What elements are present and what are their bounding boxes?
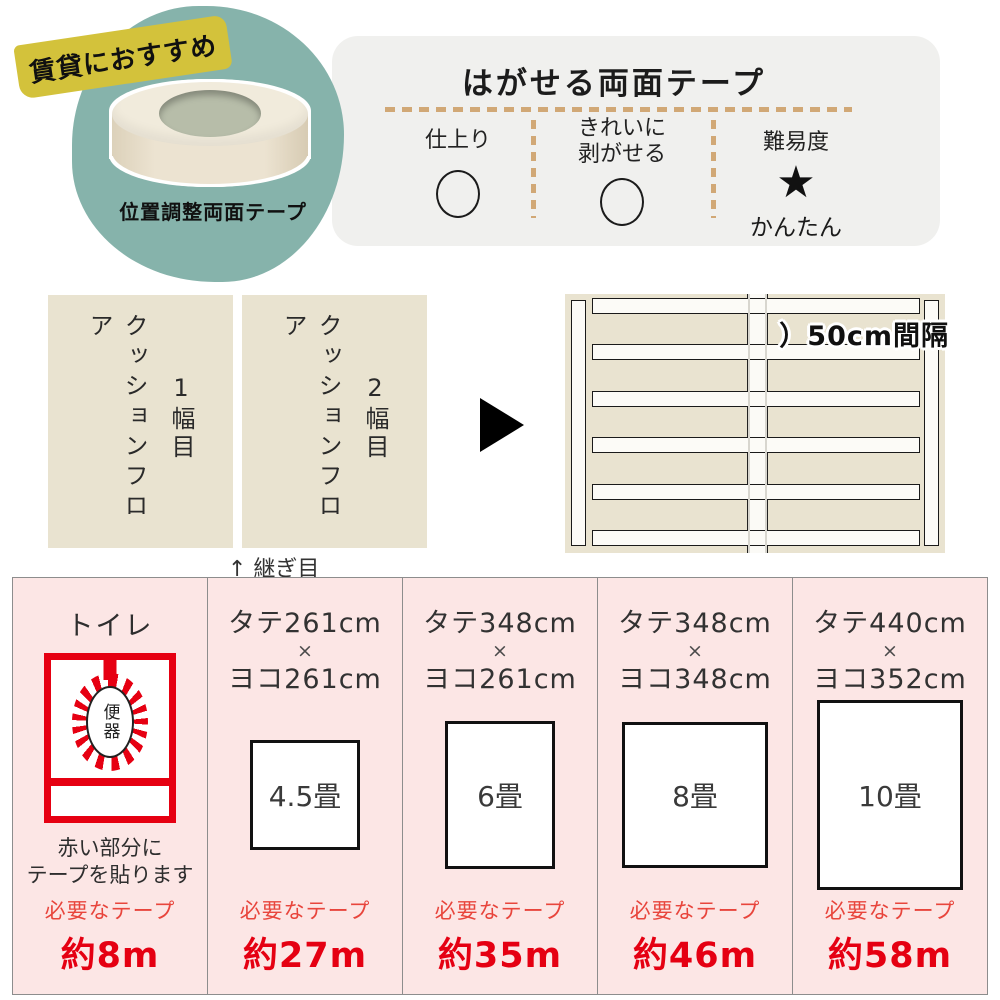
room-column-10jo: タテ440cm × ヨコ352cm 10畳 必要なテープ 約58m <box>792 578 987 994</box>
horizontal-tape-strip <box>592 530 920 546</box>
arrow-right-icon <box>480 398 524 452</box>
seam-line <box>765 294 767 553</box>
dim-height: タテ261cm <box>228 608 382 640</box>
sheet1-text: クッションフロア <box>82 313 152 548</box>
tape-required-label: 必要なテープ <box>435 895 566 925</box>
room-rect: 10畳 <box>817 700 963 890</box>
room-rect-wrap: 4.5畳 <box>208 695 402 895</box>
toilet-bowl-label: 便器 <box>98 703 123 741</box>
circle-rating-icon <box>436 170 480 218</box>
product-name: 位置調整両面テープ <box>105 196 321 225</box>
room-rect-wrap: 6畳 <box>403 695 597 895</box>
tape-requirement: 必要なテープ 約46m <box>630 895 761 978</box>
horizontal-tape-strip <box>592 437 920 453</box>
dim-separator: × <box>228 640 382 664</box>
room-rect-wrap: 8畳 <box>598 695 792 895</box>
horizontal-tape-strip <box>592 484 920 500</box>
spec-column-finish: 仕上り <box>385 128 531 218</box>
toilet-note: 赤い部分に テープを貼ります <box>27 835 194 889</box>
toilet-note-line2: テープを貼ります <box>27 862 194 889</box>
tape-roll-core <box>159 90 261 137</box>
room-rect-wrap: 10畳 <box>793 695 987 895</box>
room-rect: 6畳 <box>445 721 555 869</box>
circle-rating-icon <box>600 178 644 226</box>
room-dimensions: タテ348cm × ヨコ348cm <box>618 608 772 695</box>
room-rect: 4.5畳 <box>250 740 360 850</box>
tape-required-length: 約35m <box>435 927 566 978</box>
tape-roll-image <box>112 82 308 184</box>
tape-required-label: 必要なテープ <box>630 895 761 925</box>
dim-separator: × <box>423 640 577 664</box>
toilet-diagram: 便器 <box>44 653 176 823</box>
finish-label: 仕上り <box>425 128 491 154</box>
cushion-floor-sheet-1: クッションフロア 1幅目 <box>48 295 233 548</box>
dim-width: ヨコ261cm <box>423 664 577 696</box>
dim-height: タテ348cm <box>423 608 577 640</box>
dim-height: タテ348cm <box>618 608 772 640</box>
peelable-label-line1: きれいに <box>578 116 666 142</box>
tape-requirement: 必要なテープ 約27m <box>240 895 371 978</box>
tape-requirement: 必要なテープ 約8m <box>45 895 176 978</box>
dim-width: ヨコ348cm <box>618 664 772 696</box>
tape-requirement: 必要なテープ 約58m <box>825 895 956 978</box>
seam-line <box>748 294 750 553</box>
dim-height: タテ440cm <box>813 608 967 640</box>
toilet-tape-bar <box>51 778 169 786</box>
dim-width: ヨコ352cm <box>813 664 967 696</box>
spec-column-difficulty: 難易度 ★ かんたん <box>713 130 879 242</box>
tape-required-label: 必要なテープ <box>240 895 371 925</box>
horizontal-dashed-divider <box>385 107 852 112</box>
horizontal-tape-strip <box>592 298 920 314</box>
cushion-floor-sheet-2: クッションフロア 2幅目 <box>242 295 427 548</box>
toilet-bowl: 便器 <box>86 686 134 758</box>
difficulty-note: かんたん <box>750 208 842 242</box>
tape-required-length: 約8m <box>45 927 176 978</box>
dim-width: ヨコ261cm <box>228 664 382 696</box>
tape-layout-diagram: ）50cm間隔 <box>565 294 945 553</box>
room-column-8jo: タテ348cm × ヨコ348cm 8畳 必要なテープ 約46m <box>597 578 792 994</box>
room-column-6jo: タテ348cm × ヨコ261cm 6畳 必要なテープ 約35m <box>402 578 597 994</box>
room-dimensions: タテ261cm × ヨコ261cm <box>228 608 382 695</box>
spec-panel-title: はがせる両面テープ <box>332 58 896 103</box>
room-dimensions: タテ440cm × ヨコ352cm <box>813 608 967 695</box>
left-edge-tape-strip <box>571 300 586 546</box>
tape-requirement: 必要なテープ 約35m <box>435 895 566 978</box>
tape-required-label: 必要なテープ <box>825 895 956 925</box>
spec-panel: はがせる両面テープ 仕上り きれいに 剥がせる 難易度 ★ かんたん <box>332 36 940 246</box>
toilet-note-line1: 赤い部分に <box>27 835 194 862</box>
interval-label: ）50cm間隔 <box>779 314 949 353</box>
infographic-page: はがせる両面テープ 仕上り きれいに 剥がせる 難易度 ★ かんたん 賃貸におす… <box>0 0 1000 1000</box>
star-icon: ★ <box>776 161 815 205</box>
room-title: トイレ <box>67 604 154 643</box>
sheet2-text: クッションフロア <box>276 313 346 548</box>
difficulty-label: 難易度 <box>763 130 829 156</box>
room-column-4-5jo: タテ261cm × ヨコ261cm 4.5畳 必要なテープ 約27m <box>207 578 402 994</box>
horizontal-tape-strip <box>592 391 920 407</box>
dim-separator: × <box>618 640 772 664</box>
sheet1-number: 1幅目 <box>164 374 199 488</box>
tape-required-length: 約58m <box>825 927 956 978</box>
room-dimensions: タテ348cm × ヨコ261cm <box>423 608 577 695</box>
room-column-toilet: トイレ 便器 赤い部分に テープを貼ります 必要なテープ 約8m <box>13 578 207 994</box>
room-rect: 8畳 <box>622 722 768 868</box>
tape-required-length: 約27m <box>240 927 371 978</box>
dim-separator: × <box>813 640 967 664</box>
room-size-table: トイレ 便器 赤い部分に テープを貼ります 必要なテープ 約8m タテ261cm <box>12 577 988 995</box>
tape-required-length: 約46m <box>630 927 761 978</box>
peelable-label-line2: 剥がせる <box>578 142 666 168</box>
spec-column-peelable: きれいに 剥がせる <box>533 116 711 226</box>
sheet2-number: 2幅目 <box>358 374 393 488</box>
tape-required-label: 必要なテープ <box>45 895 176 925</box>
